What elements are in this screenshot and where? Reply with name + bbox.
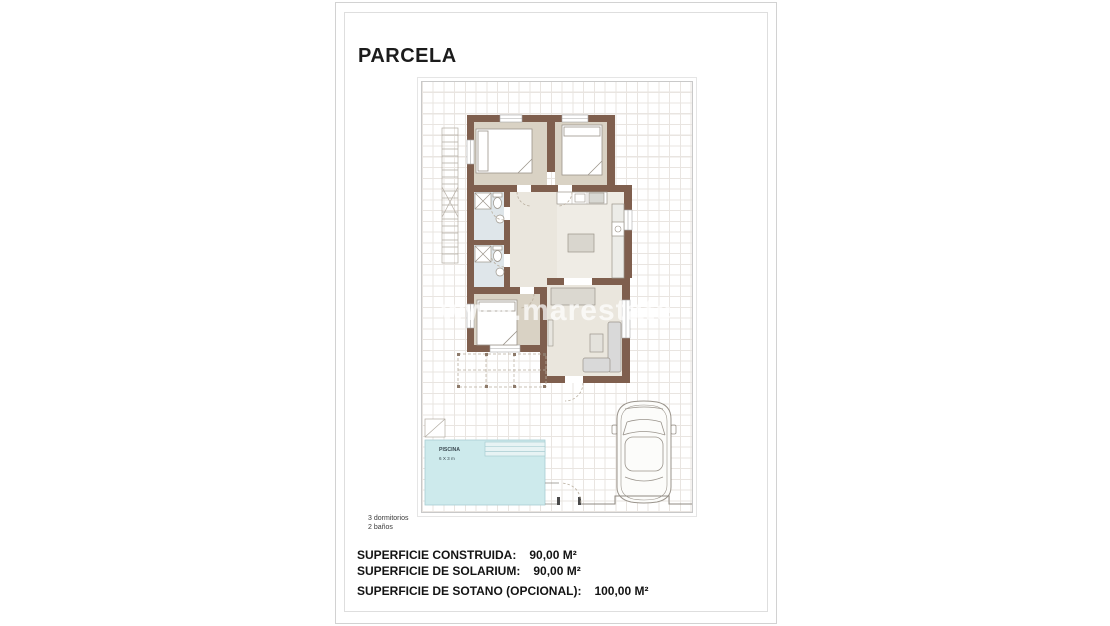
plan-sheet-page: PARCELA: [335, 2, 777, 624]
pool-size-label: 6 X 3 m: [439, 456, 455, 461]
stove-icon: [589, 193, 604, 203]
coffee-table: [590, 334, 603, 352]
page-title: PARCELA: [358, 45, 457, 68]
hallway-floor: [510, 192, 557, 290]
car-icon: [612, 401, 676, 503]
floorplan-drawing: PISCINA 6 X 3 m www: [422, 82, 692, 512]
screenshot-canvas: { "document": { "title": "PARCELA", "not…: [0, 0, 1110, 626]
pergola: [457, 353, 546, 388]
sink-icon: [496, 215, 504, 223]
sofa: [583, 358, 610, 372]
watermark: www.marestate: [440, 294, 673, 327]
plan-notes: 3 dormitorios 2 baños: [368, 514, 408, 532]
surface-basement: SUPERFICIE DE SOTANO (OPCIONAL):100,00 M…: [357, 584, 648, 598]
surface-built: SUPERFICIE CONSTRUIDA:90,00 M²: [357, 548, 648, 562]
stairs-icon: [442, 128, 458, 263]
note-bathrooms: 2 baños: [368, 523, 408, 532]
pool-steps: [485, 442, 545, 456]
toilet-icon: [494, 251, 502, 262]
sink-icon: [496, 268, 504, 276]
site-plan: PISCINA 6 X 3 m www: [421, 81, 693, 513]
swimming-pool: PISCINA 6 X 3 m: [425, 419, 545, 505]
surface-summary: SUPERFICIE CONSTRUIDA:90,00 M² SUPERFICI…: [357, 548, 648, 600]
pool-label: PISCINA: [439, 447, 460, 453]
toilet-icon: [494, 198, 502, 209]
surface-solarium: SUPERFICIE DE SOLARIUM:90,00 M²: [357, 564, 648, 578]
note-bedrooms: 3 dormitorios: [368, 514, 408, 523]
gate-post: [557, 497, 560, 505]
oven-icon: [612, 222, 624, 236]
kitchen-table: [568, 234, 594, 252]
kitchen-counter: [612, 204, 624, 278]
